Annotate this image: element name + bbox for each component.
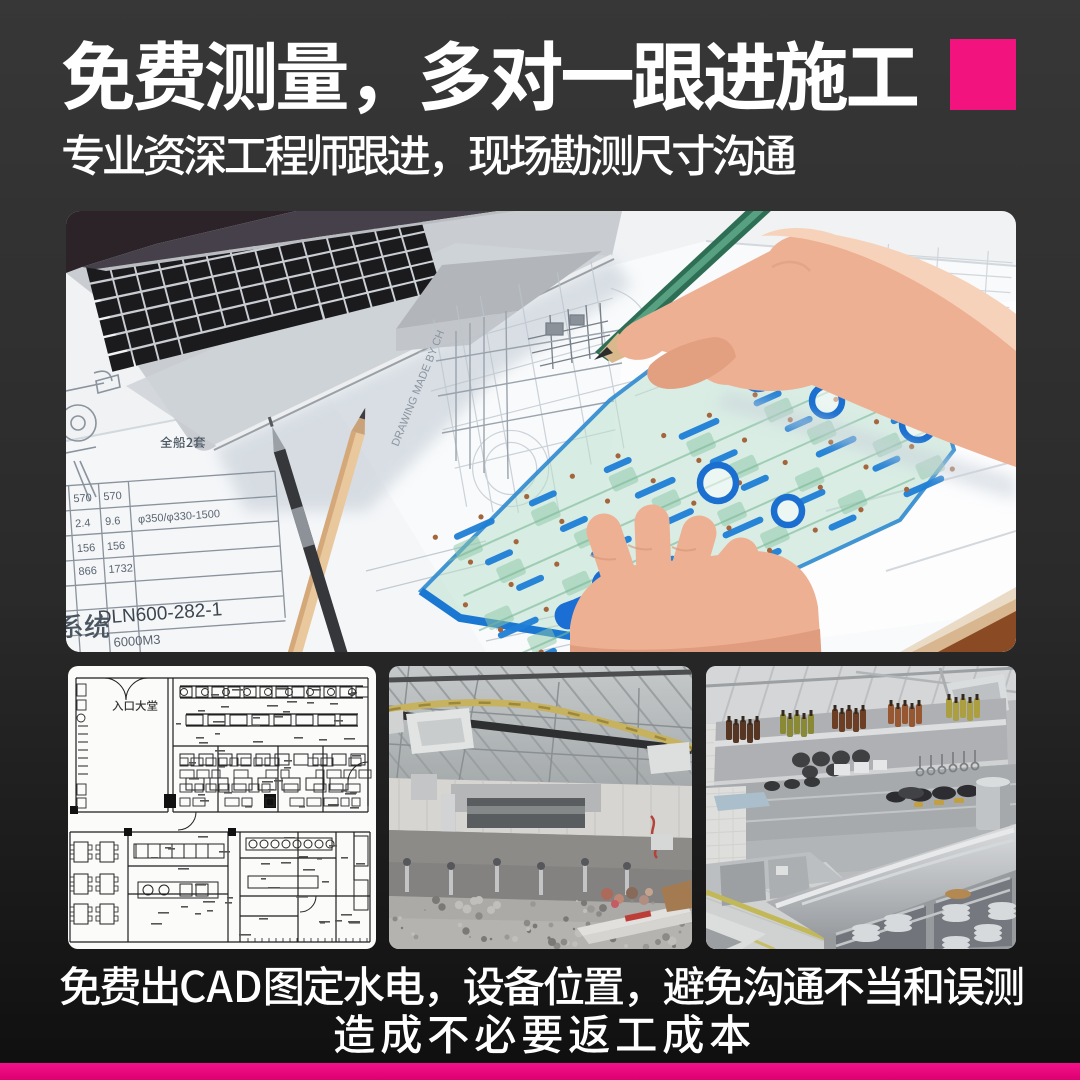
- svg-text:9.6: 9.6: [105, 515, 121, 528]
- svg-text:866: 866: [78, 565, 97, 578]
- svg-text:156: 156: [77, 542, 96, 555]
- svg-text:570: 570: [103, 490, 122, 503]
- svg-text:2.4: 2.4: [75, 517, 91, 530]
- svg-text:570: 570: [73, 492, 92, 505]
- svg-text:156: 156: [106, 540, 125, 553]
- svg-text:1732: 1732: [108, 562, 133, 576]
